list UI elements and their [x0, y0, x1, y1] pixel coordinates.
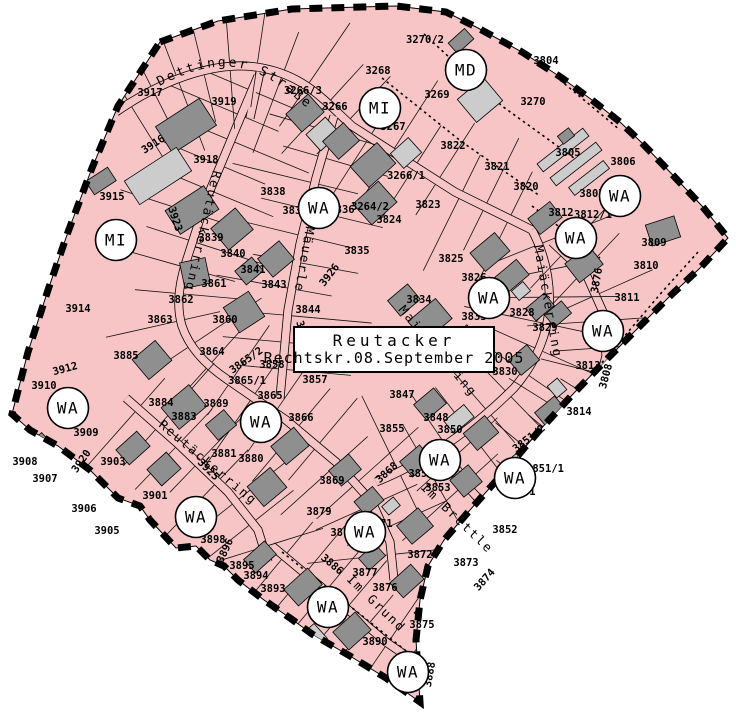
- parcel-label: 3873: [453, 557, 478, 569]
- parcel-label: 3890: [362, 636, 387, 648]
- parcel-label: 3270/2: [406, 34, 444, 46]
- zone-label: WA: [504, 469, 526, 488]
- parcel-label: 3264/2: [351, 201, 389, 213]
- parcel-label: 3876: [372, 582, 397, 594]
- parcel-label: 3875: [409, 619, 434, 631]
- parcel-label: 3804: [533, 55, 558, 67]
- parcel-label: 3917: [137, 87, 162, 99]
- plan-legal-date: Rechtskr.08.September 2005: [264, 350, 525, 367]
- parcel-label: 3906: [71, 503, 96, 515]
- parcel-label: 3828: [509, 307, 534, 319]
- zone-circle-wa: WA: [556, 218, 597, 259]
- parcel-label: 3840: [220, 248, 245, 260]
- parcel-label: 3805: [555, 147, 580, 159]
- parcel-label: 3266/3: [284, 85, 322, 97]
- parcel-label: 3864: [199, 346, 224, 358]
- parcel-label: 3820: [513, 181, 538, 193]
- parcel-label: 3809: [641, 237, 666, 249]
- zone-label: WA: [354, 523, 376, 542]
- zone-label: WA: [565, 229, 587, 248]
- parcel-label: 3880: [238, 453, 263, 465]
- parcel-label: 3895: [229, 560, 254, 572]
- parcel-label: 3889: [203, 398, 228, 410]
- parcel-label: 3915: [99, 191, 124, 203]
- parcel-label: 3879: [306, 506, 331, 518]
- parcel-label: 3877: [352, 567, 377, 579]
- parcel-label: 3881: [211, 448, 236, 460]
- zone-label: WA: [397, 663, 419, 682]
- parcel-label: 3908: [12, 456, 37, 468]
- parcel-label: 3865: [257, 390, 282, 402]
- parcel-label: 3884: [148, 397, 173, 409]
- zone-label: WA: [317, 598, 339, 617]
- zone-label: WA: [592, 322, 614, 341]
- parcel-label: 3872: [407, 549, 432, 561]
- parcel-label: 3843: [261, 279, 286, 291]
- zone-circle-wa: WA: [241, 402, 282, 443]
- parcel-label: 3903: [100, 456, 125, 468]
- zone-circle-wa: WA: [345, 512, 386, 553]
- parcel-label: 3862: [168, 294, 193, 306]
- parcel-label: 3848: [423, 412, 448, 424]
- zone-label: WA: [429, 451, 451, 470]
- parcel-label: 3824: [376, 214, 401, 226]
- zone-circle-wa: WA: [469, 278, 510, 319]
- parcel-label: 3821: [484, 161, 509, 173]
- parcel-label: 3893: [260, 583, 285, 595]
- zone-label: WA: [609, 187, 631, 206]
- building-footprint: [498, 12, 518, 31]
- parcel-label: 3907: [32, 473, 57, 485]
- parcel-label: 3850: [437, 424, 462, 436]
- zoning-map: Dettinger StraßeReutäckerringReutäckerri…: [0, 0, 736, 724]
- zone-circle-wa: WA: [420, 440, 461, 481]
- parcel-label: 3844: [295, 304, 320, 316]
- parcel-label: 3857: [302, 374, 327, 386]
- zone-circle-wa: WA: [176, 497, 217, 538]
- parcel-label: 3266: [322, 101, 347, 113]
- parcel-label: 3813: [575, 360, 600, 372]
- parcel-label: 3905: [94, 525, 119, 537]
- parcel-label: 3910: [31, 380, 56, 392]
- parcel-label: 3860: [212, 314, 237, 326]
- parcel-label: 3838: [260, 186, 285, 198]
- zone-circle-wa: WA: [600, 176, 641, 217]
- parcel-label: 3810: [633, 260, 658, 272]
- zone-label: WA: [185, 508, 207, 527]
- parcel-label: 3830: [492, 366, 517, 378]
- zone-label: MD: [455, 61, 477, 80]
- parcel-label: 3822: [440, 140, 465, 152]
- parcel-label: 3866: [288, 412, 313, 424]
- zone-circle-wa: WA: [495, 458, 536, 499]
- parcel-label: 3270: [520, 96, 545, 108]
- parcel-label: 3901: [142, 490, 167, 502]
- plan-title-box: Reutacker Rechtskr.08.September 2005: [293, 326, 495, 373]
- parcel-label: 3812: [548, 207, 573, 219]
- zone-circle-wa: WA: [299, 188, 340, 229]
- zone-circle-md: MD: [446, 50, 487, 91]
- parcel-label: 3853: [425, 482, 450, 494]
- zone-label: WA: [478, 289, 500, 308]
- zone-circle-wa: WA: [308, 587, 349, 628]
- parcel-label: 3835: [344, 245, 369, 257]
- zone-circle-wa: WA: [48, 388, 89, 429]
- parcel-label: 3852: [492, 524, 517, 536]
- parcel-label: 3909: [73, 427, 98, 439]
- zone-label: WA: [250, 413, 272, 432]
- parcel-label: 3855: [379, 423, 404, 435]
- parcel-label: 3829: [532, 322, 557, 334]
- parcel-label: 3885: [113, 350, 138, 362]
- parcel-label: 3847: [389, 389, 414, 401]
- parcel-label: 3869: [319, 475, 344, 487]
- parcel-label: 3841: [240, 264, 265, 276]
- parcel-label: 3883: [171, 411, 196, 423]
- zone-circle-mi: MI: [360, 88, 401, 129]
- zone-label: MI: [105, 231, 127, 250]
- parcel-label: 3269: [424, 89, 449, 101]
- parcel-label: 3863: [147, 314, 172, 326]
- parcel-label: 3811: [614, 292, 639, 304]
- parcel-label: 3919: [211, 96, 236, 108]
- parcel-label: 3861: [201, 278, 226, 290]
- zone-label: WA: [308, 199, 330, 218]
- parcel-label: 3914: [65, 303, 90, 315]
- parcel-label: 3806: [610, 156, 635, 168]
- plan-title: Reutacker: [333, 332, 456, 350]
- parcel-label: 3823: [415, 199, 440, 211]
- parcel-label: 3814: [566, 406, 591, 418]
- parcel-label: 3266/1: [387, 170, 425, 182]
- parcel-label: 3839: [198, 232, 223, 244]
- zone-label: WA: [57, 399, 79, 418]
- zone-circle-wa: WA: [388, 652, 429, 693]
- parcel-label: 3918: [193, 154, 218, 166]
- parcel-label: 3825: [438, 253, 463, 265]
- parcel-label: 3834: [406, 294, 431, 306]
- parcel-label: 3865/1: [228, 375, 266, 387]
- zone-circle-wa: WA: [583, 311, 624, 352]
- zone-circle-mi: MI: [96, 220, 137, 261]
- parcel-label: 3268: [365, 65, 390, 77]
- zone-label: MI: [369, 99, 391, 118]
- parcel-label: 3874: [472, 567, 498, 594]
